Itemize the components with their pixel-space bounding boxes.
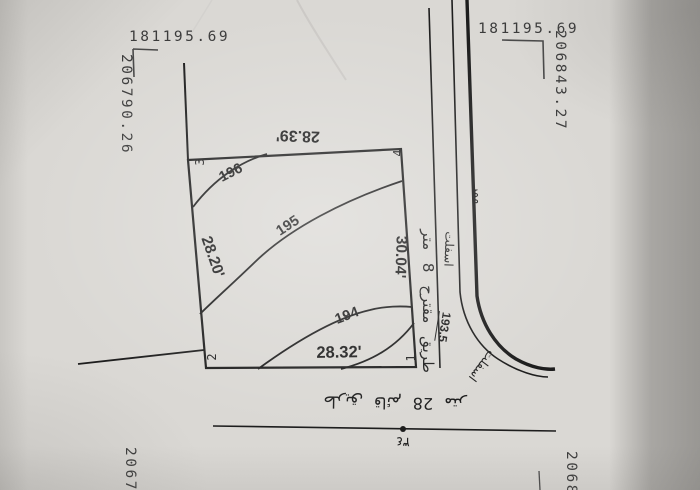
corner-number-4: 4	[391, 149, 405, 156]
survey-linework	[0, 0, 700, 490]
coord-top-right-vertical: 206843.27	[552, 30, 568, 131]
corner-number-3: 3	[193, 158, 207, 165]
contour-195-line	[200, 181, 402, 314]
coordinate-tick-top-left	[133, 49, 158, 77]
dimension-bottom: 28.32'	[316, 343, 362, 363]
scanned-survey-sketch: 181195.69 206790.26 181195.69 206843.27 …	[0, 0, 700, 490]
street-edge-line	[213, 426, 556, 431]
asphalt-label-upper: اسفلت	[441, 231, 456, 267]
corner-number-2: 2	[205, 353, 219, 360]
adjacent-boundary-line	[78, 350, 204, 364]
coordinate-tick-bottom-right	[539, 471, 540, 490]
coordinate-tick-top-right	[502, 40, 544, 79]
survey-point-dot	[400, 426, 406, 432]
coord-bottom-right-vertical: 206843.27	[563, 451, 579, 490]
boundary-extension-line	[184, 63, 188, 160]
asphalt-road-edge-line	[467, 0, 555, 369]
dimension-right: 30.04'	[390, 235, 409, 278]
station-number-label: ٣٤	[396, 433, 411, 449]
proposed-road-label: طريق مقترح 8 متر	[419, 158, 437, 373]
passage-label: ممر	[472, 186, 485, 204]
coord-top-left-vertical: 206790.26	[118, 54, 134, 155]
coord-bottom-left-vertical: 206790.26	[122, 447, 138, 490]
paper-crease-line	[297, 0, 346, 80]
corner-number-1: 1	[404, 354, 418, 361]
coord-top-left-horizontal: 181195.69	[129, 29, 230, 45]
dimension-top: 28.39'	[276, 125, 320, 145]
road-inner-edge-line	[452, 0, 548, 377]
existing-street-label: طريق قائم 28 متر	[323, 392, 466, 413]
